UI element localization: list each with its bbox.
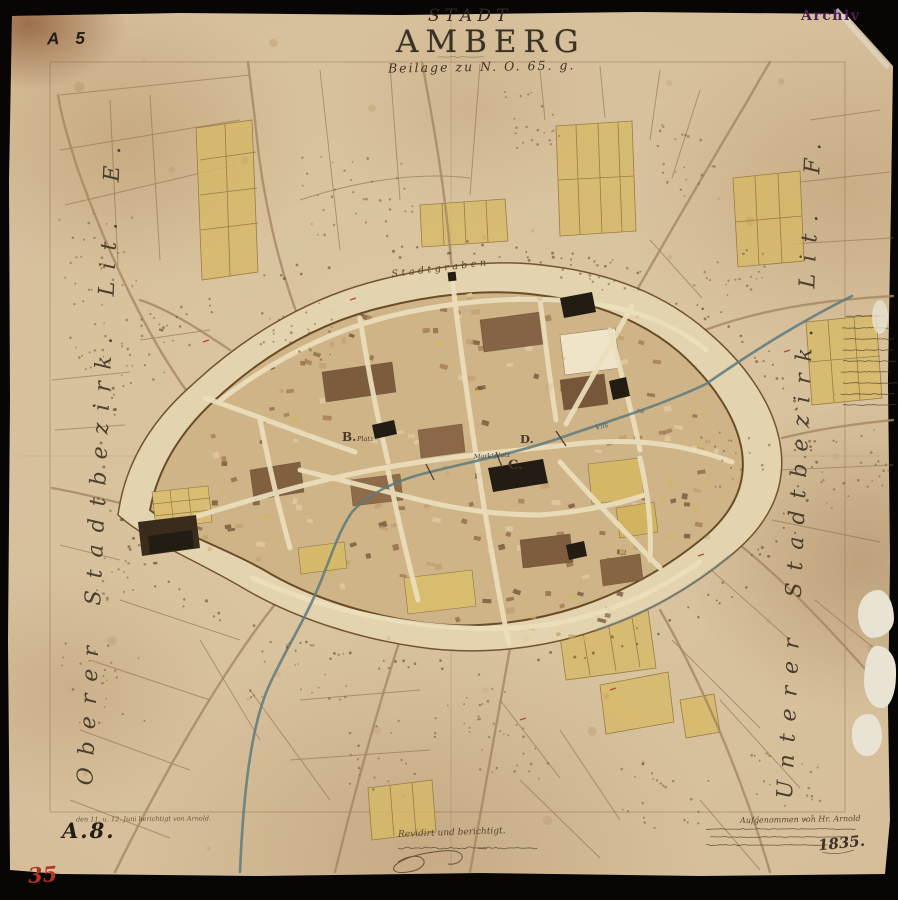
block-d-letter: D. <box>520 432 534 446</box>
photographed-map-sheet: Stadtgraben Marktplatz B. Platz D. C. Vi… <box>0 0 898 900</box>
title-kicker: STADT <box>428 6 512 26</box>
damage-patch <box>858 590 894 638</box>
sheet-mark-a5: A 5 <box>47 29 91 50</box>
square-b-word: Platz <box>356 435 374 443</box>
city-core <box>118 263 852 872</box>
damage-patch <box>852 714 882 756</box>
map-title: AMBERG <box>396 24 586 60</box>
block-c-letter: C. <box>508 458 523 473</box>
damage-patch <box>864 646 896 708</box>
red-inventory-number: 35 <box>27 861 58 888</box>
map-drawing: Stadtgraben Marktplatz B. Platz D. C. Vi… <box>0 0 898 900</box>
damage-patch <box>872 300 888 334</box>
square-b-letter: B. <box>342 430 356 444</box>
revision-note: den 11. u. 12. Juni berichtigt von Arnol… <box>76 814 211 823</box>
archive-stamp: Archiv <box>801 8 860 24</box>
